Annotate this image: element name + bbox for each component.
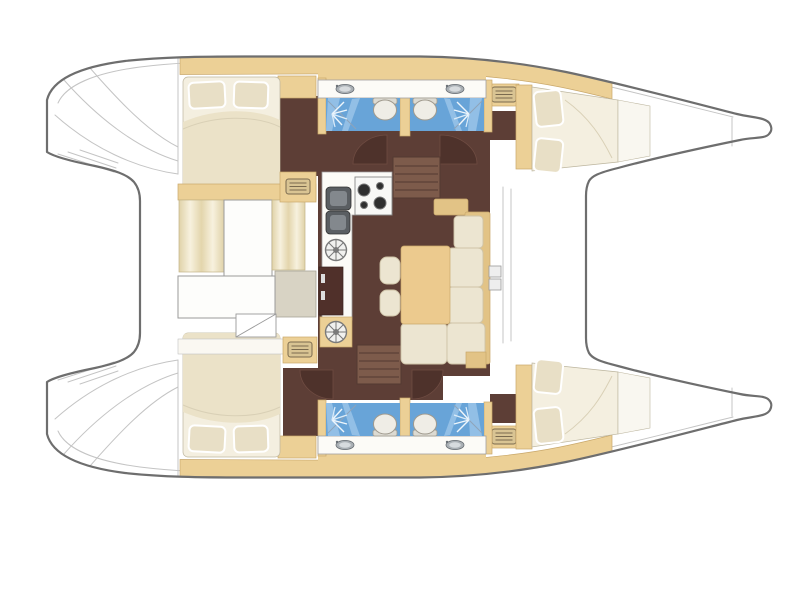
- stool: [380, 290, 400, 316]
- toilet-icon: [413, 414, 437, 436]
- bench-cushion: [401, 323, 447, 364]
- cockpit-floor: [178, 276, 275, 318]
- pillow: [533, 407, 564, 445]
- sofa-back: [434, 199, 468, 215]
- cockpit-locker: [236, 314, 276, 337]
- basin-sink-icon: [446, 440, 464, 449]
- sofa-cushion: [454, 216, 483, 248]
- companionway-steps-icon: [492, 87, 516, 102]
- mast-step-fitting: [489, 266, 501, 277]
- pillow: [188, 81, 225, 109]
- sofa-cushion: [447, 248, 483, 287]
- pillow: [533, 359, 563, 395]
- pillow: [533, 138, 563, 174]
- helm-wheel-vent-icon: [326, 240, 347, 261]
- port-aft-cabin: [183, 77, 280, 201]
- curtain-panel: [179, 200, 224, 272]
- sofa-cushion: [447, 287, 483, 323]
- bed-foot-platform: [618, 100, 650, 162]
- toilet-icon: [373, 98, 397, 120]
- stool: [380, 257, 400, 284]
- pillow: [533, 90, 564, 128]
- catamaran-floor-plan-canvas: [0, 0, 800, 600]
- pillow: [234, 425, 269, 452]
- companionway-stairs-starboard: [357, 345, 401, 384]
- starboard-heads: [318, 398, 492, 456]
- cockpit-shelf: [275, 271, 316, 317]
- port-heads: [318, 78, 492, 136]
- toilet-icon: [413, 98, 437, 120]
- companionway-steps-icon: [286, 179, 310, 194]
- cabinet: [278, 76, 316, 98]
- catamaran-floor-plan: [0, 0, 800, 600]
- sliding-door: [224, 200, 272, 276]
- port-hull-corridor: [278, 96, 318, 176]
- bed-foot-platform: [618, 372, 650, 434]
- basin-sink-icon: [446, 84, 464, 93]
- fridge: [319, 267, 343, 315]
- helm-wheel-vent-icon: [326, 322, 347, 343]
- headboard-wall: [516, 85, 532, 169]
- salon-table: [401, 246, 450, 324]
- companionway-steps-icon: [288, 342, 312, 357]
- companionway-steps-icon: [492, 429, 516, 444]
- pillow: [234, 81, 269, 108]
- curtain-panel: [272, 200, 305, 270]
- mast-step-fitting: [489, 279, 501, 290]
- toilet-icon: [373, 414, 397, 436]
- stove-burners-icon: [355, 177, 392, 215]
- pillow: [188, 425, 225, 453]
- basin-sink-icon: [336, 84, 354, 93]
- headboard-wall: [516, 365, 532, 449]
- cabinet: [278, 436, 316, 458]
- companionway-stairs-port: [393, 157, 440, 198]
- side-cabinet: [466, 352, 486, 368]
- basin-sink-icon: [336, 440, 354, 449]
